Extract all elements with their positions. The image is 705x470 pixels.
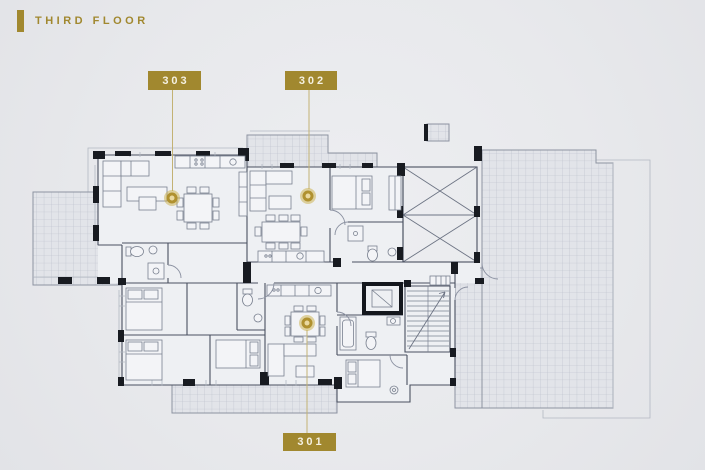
balcony-301-bottom <box>172 385 337 413</box>
floor-plan-drawing <box>0 0 705 470</box>
page-title: THIRD FLOOR <box>35 15 149 27</box>
kitchen-302 <box>258 251 324 262</box>
apartment-302-label[interactable]: 302 <box>285 71 337 90</box>
bedroom-301-c <box>216 340 260 368</box>
floor-header: THIRD FLOOR <box>17 10 149 32</box>
coffee-table-302 <box>269 196 291 209</box>
void-shaft <box>403 167 477 262</box>
terrace-right-lower <box>455 268 482 408</box>
apartment-303-label[interactable]: 303 <box>148 71 201 90</box>
apartment-301-label[interactable]: 301 <box>283 433 336 451</box>
bedroom-301-b <box>126 340 162 380</box>
marker-301[interactable] <box>299 315 315 331</box>
terrace-right <box>482 150 613 408</box>
terrace-top-small <box>427 124 449 141</box>
floor-plan-page: THIRD FLOOR <box>0 0 705 470</box>
kitchen-301 <box>267 285 331 296</box>
core-shelf <box>430 276 450 285</box>
marker-302[interactable] <box>300 188 316 204</box>
bedroom-301-a <box>126 288 162 330</box>
balcony-302-top <box>247 135 377 167</box>
marker-303[interactable] <box>164 190 180 206</box>
title-accent-bar <box>17 10 24 32</box>
bedroom-302 <box>332 176 401 210</box>
